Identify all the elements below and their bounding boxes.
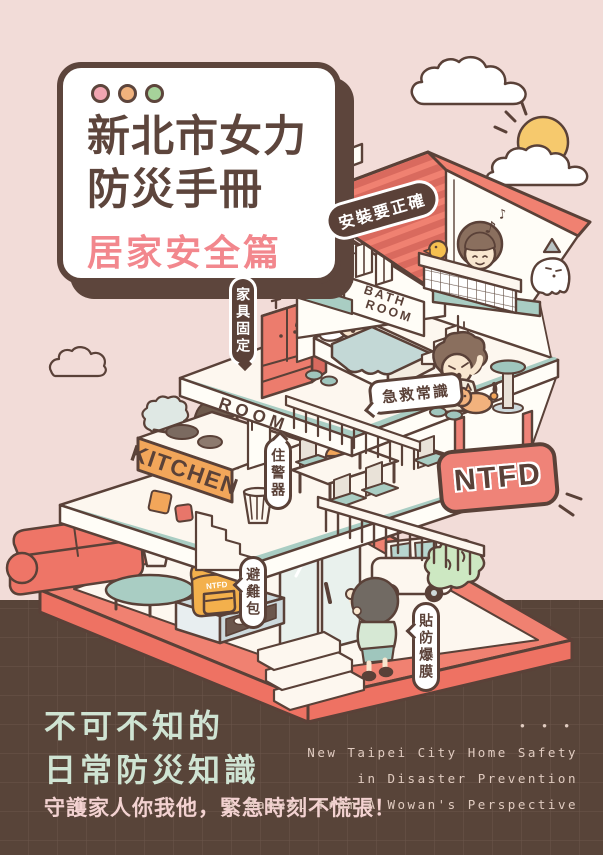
dot-green-icon — [145, 84, 164, 103]
label-blast-film: 貼防爆膜 — [412, 602, 440, 692]
dot-orange-icon — [118, 84, 137, 103]
label-smoke-alarm: 住警器 — [264, 437, 292, 510]
footer-english-line1: New Taipei City Home Safety — [227, 740, 578, 766]
slipper — [321, 377, 337, 386]
label-secure-furniture: 家具固定 — [232, 279, 254, 363]
ntfd-sign: NTFD — [435, 441, 560, 515]
title-card: 新北市女力 防災手冊 居家安全篇 — [57, 62, 341, 284]
footer: 不可不知的 日常防災知識 守護家人你我他，緊急時刻不慌張！ • • • New … — [0, 600, 603, 855]
poster-title-line2: 防災手冊 — [87, 164, 335, 217]
footer-english-line2: in Disaster Prevention — [227, 766, 578, 792]
window-dots — [91, 84, 335, 103]
poster-title-line1: 新北市女力 — [87, 111, 335, 164]
poster: KITCHEN — [0, 0, 603, 855]
poster-subtitle: 居家安全篇 — [87, 224, 335, 276]
dot-pink-icon — [91, 84, 110, 103]
slipper — [306, 371, 322, 380]
footer-english: New Taipei City Home Safety in Disaster … — [227, 740, 578, 818]
label-go-bag: 避難包 — [239, 556, 267, 629]
footer-english-line3: A Manual from A Wowan's Perspective — [227, 792, 578, 818]
footer-dots-icon: • • • — [520, 718, 576, 733]
